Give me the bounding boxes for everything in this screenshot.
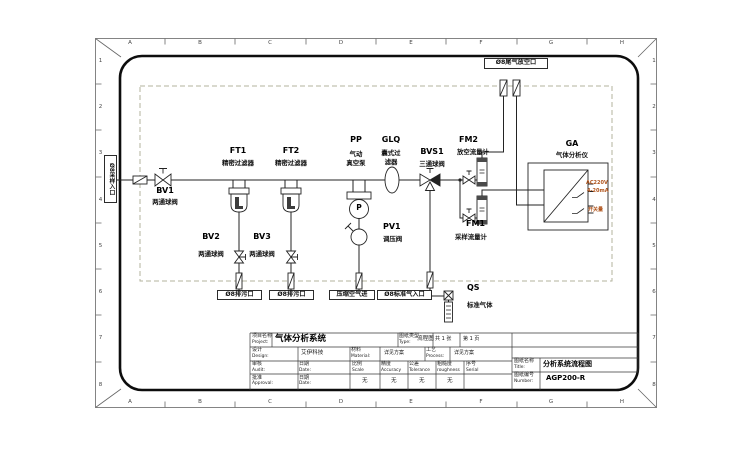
- fm1-tag: FM1: [466, 220, 485, 229]
- tb-number-label: 图纸编号Number:: [514, 373, 534, 384]
- grid-col-bot-f: F: [471, 399, 491, 405]
- glq-tag: GLQ: [377, 136, 405, 145]
- port-standard-gas-inlet: Ø8标准气入口: [377, 290, 432, 301]
- tb-design-label: 设计Design:: [252, 348, 269, 359]
- grid-col-top-c: C: [260, 40, 280, 46]
- qs-name: 标准气体: [467, 302, 493, 309]
- port-tail-gas-vent: Ø8尾气放空口: [484, 58, 548, 69]
- tb-type-value: 流程图: [417, 336, 434, 342]
- pp-tag: PP: [340, 136, 372, 145]
- grid-row-right-2: 2: [650, 104, 658, 110]
- grid-row-right-1: 1: [650, 58, 658, 64]
- bv3-name: 两通球阀: [244, 251, 280, 258]
- tb-material-label: 材料Material:: [351, 348, 370, 359]
- bv1-name: 两通球阀: [145, 199, 185, 206]
- tb-title-label-cn: 图纸名称: [514, 359, 534, 365]
- ft1-filter-symbol: [229, 188, 249, 212]
- grid-row-right-5: 5: [650, 243, 658, 249]
- grid-col-bot-e: E: [401, 399, 421, 405]
- tb-type-label-en: Type:: [399, 340, 419, 345]
- vent-stack-symbols: [500, 80, 520, 96]
- tb-title-value: 分析系统流程图: [543, 361, 592, 369]
- grid-col-top-h: H: [612, 40, 632, 46]
- tb-project-label-cn: 项目名称: [252, 334, 272, 340]
- pv1-tag: PV1: [383, 223, 401, 232]
- ga-signal-power: AC220V: [586, 181, 608, 187]
- tb-process-label: 工艺Process:: [426, 348, 444, 359]
- tb-roughness-label-en: roughness: [437, 368, 460, 373]
- bv1-valve-symbol: [155, 169, 171, 187]
- fm2-flowmeter-symbol: [463, 158, 487, 186]
- ft1-name: 精密过滤器: [219, 160, 257, 167]
- ga-name: 气体分析仪: [550, 152, 594, 159]
- grid-row-right-3: 3: [650, 150, 658, 156]
- grid-col-bot-a: A: [120, 399, 140, 405]
- fm1-name: 采样流量计: [455, 234, 487, 241]
- tb-date1-label-en: Date:: [299, 368, 311, 373]
- fm2-tag: FM2: [459, 136, 478, 145]
- tb-design-value: 艾伊科技: [301, 350, 323, 356]
- bvs1-valve-symbol: [420, 169, 440, 191]
- drain-right-symbol: [288, 273, 294, 289]
- port-compressed-air: 压缩空气进: [329, 290, 375, 301]
- std-gas-boundary-symbol: [427, 272, 433, 288]
- inner-border: [120, 56, 638, 390]
- tb-approval-label: 批准Approval:: [252, 376, 273, 387]
- tb-accuracy-value: 无: [391, 378, 397, 384]
- tb-date1-label: 日期Date:: [299, 362, 311, 373]
- tb-tolerance-label: 公差Tolerance: [409, 362, 430, 373]
- bvs1-tag: BVS1: [414, 148, 450, 157]
- grid-row-right-4: 4: [650, 197, 658, 203]
- bvs1-name: 三通球阀: [413, 161, 451, 168]
- pv1-name: 调压阀: [383, 236, 402, 243]
- qs-standard-gas-symbol: [444, 291, 453, 322]
- glq-name-line1: 囊式过: [377, 150, 405, 157]
- tb-audit-label: 审核Audit:: [252, 362, 265, 373]
- bv3-valve-symbol: [287, 251, 298, 263]
- tb-project-value: 气体分析系统: [275, 335, 326, 344]
- grid-col-top-f: F: [471, 40, 491, 46]
- glq-name-line2: 滤器: [377, 159, 405, 166]
- tb-serial-label-en: Serial: [466, 368, 478, 373]
- tb-sheet-page: 第 1 页: [463, 337, 479, 343]
- grid-row-left-5: 5: [97, 243, 105, 249]
- tb-scale-label-en: Scale: [352, 368, 364, 373]
- grid-col-bot-c: C: [260, 399, 280, 405]
- ft2-filter-symbol: [281, 188, 301, 212]
- grid-row-right-6: 6: [650, 289, 658, 295]
- ga-signal-switch: 开关量: [588, 208, 603, 214]
- port-drain-right: Ø8排污口: [269, 290, 314, 301]
- tb-roughness-value: 无: [447, 378, 453, 384]
- pp-name-line1: 气动: [340, 151, 372, 158]
- grid-row-right-7: 7: [650, 335, 658, 341]
- ga-analyzer-symbol: [528, 163, 608, 230]
- bv3-tag: BV3: [247, 233, 277, 242]
- tb-material-label-en: Material:: [351, 354, 370, 359]
- pv1-regulator-symbol: [345, 223, 367, 245]
- tb-sheets-total: 共 1 张: [435, 337, 451, 343]
- port-drain-left: Ø8排污口: [217, 290, 262, 301]
- drawing-sheet: A B C D E F G H A B C D E F G H 1 2 3 4 …: [0, 0, 750, 450]
- bv1-tag: BV1: [150, 187, 180, 196]
- tb-roughness-label: 粗糙度roughness: [437, 362, 460, 373]
- glq-filter-symbol: [385, 167, 399, 193]
- tb-approval-label-en: Approval:: [252, 381, 273, 386]
- tb-process-label-en: Process:: [426, 354, 444, 359]
- grid-row-right-8: 8: [650, 382, 658, 388]
- tb-design-label-en: Design:: [252, 354, 269, 359]
- inlet-joint-symbol: [133, 176, 147, 184]
- grid-col-top-g: G: [541, 40, 561, 46]
- ga-signal-analog: 4-20mA: [587, 189, 609, 195]
- grid-col-bot-h: H: [612, 399, 632, 405]
- qs-tag: QS: [467, 284, 480, 293]
- tb-serial-label: 序号Serial: [466, 362, 478, 373]
- grid-col-bot-d: D: [331, 399, 351, 405]
- tb-project-label-en: Project:: [252, 340, 272, 345]
- tb-type-label: 图纸类型Type:: [399, 334, 419, 345]
- grid-row-left-2: 2: [97, 104, 105, 110]
- grid-col-bot-g: G: [541, 399, 561, 405]
- diagram-linework: [0, 0, 750, 450]
- tb-audit-label-en: Audit:: [252, 368, 265, 373]
- tb-tolerance-value: 无: [419, 378, 425, 384]
- tb-scale-label: 比例Scale: [352, 362, 364, 373]
- tb-number-label-en: Number:: [514, 379, 534, 384]
- fm2-name: 放空流量计: [457, 149, 489, 156]
- tb-date2-label: 日期Date:: [299, 376, 311, 387]
- tb-date2-label-en: Date:: [299, 381, 311, 386]
- tb-process-value: 详见方案: [454, 351, 474, 357]
- tb-accuracy-label: 精度Accuracy: [381, 362, 401, 373]
- tb-material-value: 详见方案: [384, 351, 404, 357]
- pump-letter: P: [355, 204, 364, 212]
- port-sample-inlet: Ø8采样入口: [104, 155, 117, 203]
- tb-scale-value: 无: [362, 378, 368, 384]
- grid-col-top-a: A: [120, 40, 140, 46]
- tb-number-value: AGP200-R: [546, 375, 585, 383]
- ft2-name: 精密过滤器: [272, 160, 310, 167]
- comp-air-boundary-symbol: [356, 273, 362, 289]
- pp-name-line2: 真空泵: [340, 160, 372, 167]
- grid-col-top-b: B: [190, 40, 210, 46]
- grid-col-top-e: E: [401, 40, 421, 46]
- bv2-name: 两通球阀: [193, 251, 229, 258]
- bv2-tag: BV2: [196, 233, 226, 242]
- grid-col-top-d: D: [331, 40, 351, 46]
- outer-border: [96, 39, 657, 408]
- tb-title-label-en: Title:: [514, 365, 534, 370]
- drain-left-symbol: [236, 273, 242, 289]
- ft1-tag: FT1: [223, 147, 253, 156]
- grid-row-left-8: 8: [97, 382, 105, 388]
- junction-dot: [458, 178, 461, 181]
- tb-tolerance-label-en: Tolerance: [409, 368, 430, 373]
- grid-row-left-1: 1: [97, 58, 105, 64]
- ft2-tag: FT2: [276, 147, 306, 156]
- tb-number-label-cn: 图纸编号: [514, 373, 534, 379]
- ga-tag: GA: [562, 140, 582, 149]
- grid-row-left-7: 7: [97, 335, 105, 341]
- tb-type-label-cn: 图纸类型: [399, 334, 419, 340]
- tb-project-label: 项目名称Project:: [252, 334, 272, 345]
- grid-col-bot-b: B: [190, 399, 210, 405]
- grid-row-left-6: 6: [97, 289, 105, 295]
- tb-title-label: 图纸名称Title:: [514, 359, 534, 370]
- tb-accuracy-label-en: Accuracy: [381, 368, 401, 373]
